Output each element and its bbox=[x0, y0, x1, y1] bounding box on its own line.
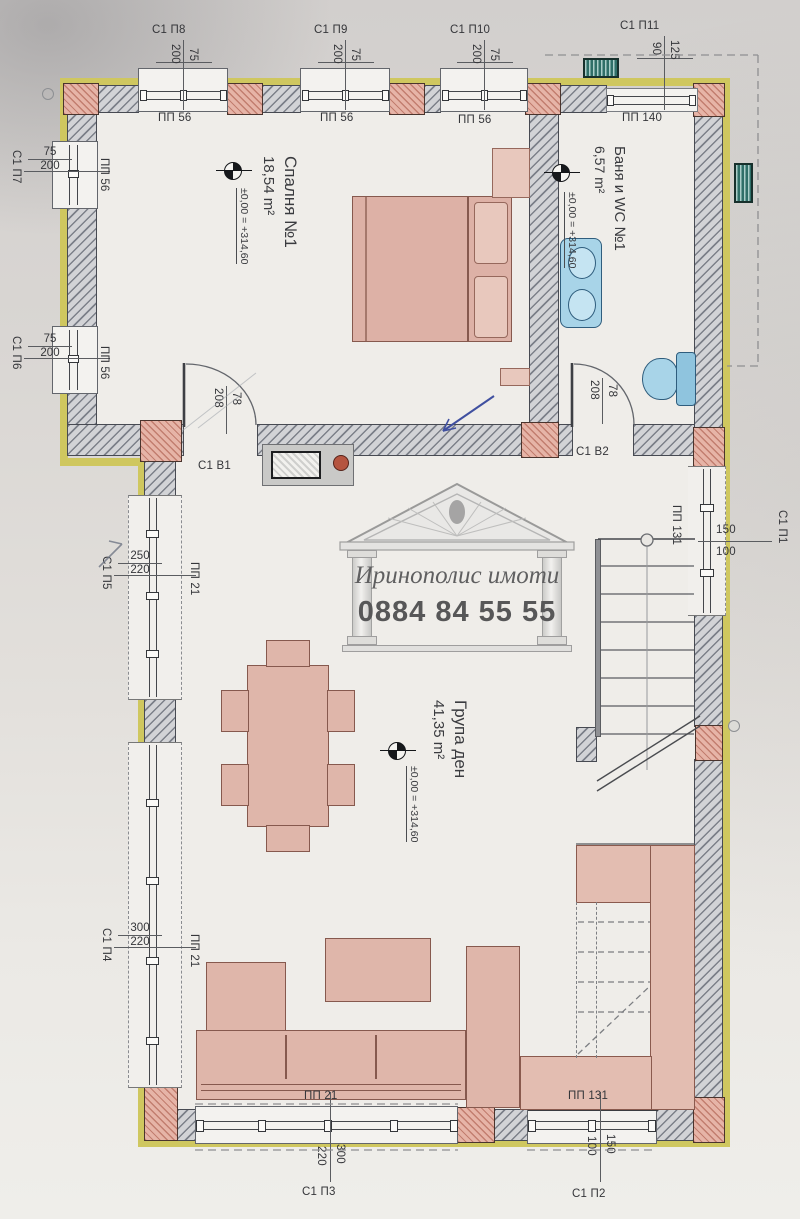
door-opening-b1 bbox=[183, 425, 258, 457]
bedroom-label: Спалня №1 18,54 m² bbox=[260, 156, 300, 248]
bed-pillow bbox=[474, 276, 508, 338]
level-marker-bath bbox=[552, 164, 570, 182]
wall-segment bbox=[145, 461, 175, 495]
chair bbox=[221, 690, 249, 732]
wall-bedroom-bath-divider bbox=[530, 112, 558, 425]
window-dim: 75 bbox=[488, 48, 500, 61]
dining-table bbox=[247, 665, 329, 827]
downpipe-circle bbox=[728, 720, 740, 732]
window-code: С1 П10 bbox=[450, 24, 490, 36]
column bbox=[228, 84, 262, 114]
window-lintel: ПП 56 bbox=[458, 114, 492, 126]
column bbox=[694, 84, 724, 116]
column bbox=[694, 1098, 724, 1142]
window-code: С1 П1 bbox=[776, 510, 788, 544]
window-lintel: ПП 21 bbox=[304, 1090, 338, 1102]
window-dim: 300 bbox=[118, 922, 162, 936]
wall-stair-stub bbox=[577, 728, 596, 761]
coffee-table bbox=[325, 938, 431, 1002]
window-p4 bbox=[128, 742, 182, 1088]
door-code: С1 В2 bbox=[576, 446, 609, 458]
chair bbox=[221, 764, 249, 806]
bedroom-level: ±0,00 = +314,60 bbox=[236, 188, 250, 264]
chair bbox=[327, 764, 355, 806]
bed-pillow bbox=[474, 202, 508, 264]
watermark-pediment-icon bbox=[338, 478, 576, 552]
stair-stringer-wall bbox=[596, 540, 600, 736]
stair-dashed-edge bbox=[596, 902, 597, 1058]
window-lintel: ПП 56 bbox=[320, 112, 354, 124]
chair bbox=[266, 825, 310, 852]
window-lintel: ПП 21 bbox=[188, 934, 200, 968]
window-dim: 200 bbox=[470, 44, 482, 64]
window-code: С1 П9 bbox=[314, 24, 348, 36]
window-lintel: ПП 140 bbox=[622, 112, 662, 124]
bath-label: Баня и WC №1 6,57 m² bbox=[592, 146, 628, 251]
level-marker-bedroom bbox=[224, 162, 242, 180]
window-dim: 200 bbox=[169, 44, 181, 64]
window-p5 bbox=[128, 495, 182, 700]
door-dim: 78 bbox=[606, 384, 618, 397]
wall-segment bbox=[558, 425, 572, 455]
window-dim: 300 bbox=[334, 1144, 346, 1164]
nightstand bbox=[500, 368, 530, 386]
window-dim: 220 bbox=[315, 1146, 327, 1166]
window-lintel: ПП 131 bbox=[568, 1090, 608, 1102]
column bbox=[522, 423, 558, 457]
column bbox=[141, 421, 181, 461]
door-dim: 208 bbox=[212, 388, 224, 408]
column bbox=[694, 428, 724, 466]
stair-lower-flight bbox=[576, 845, 652, 903]
window-lintel: ПП 56 bbox=[98, 346, 110, 380]
wall-segment bbox=[695, 616, 722, 726]
window-lintel: ПП 56 bbox=[98, 158, 110, 192]
bath-level: ±0,00 = +314,60 bbox=[564, 192, 578, 268]
window-dim: 150 bbox=[716, 524, 736, 536]
wall-pier bbox=[145, 700, 175, 742]
wardrobe bbox=[492, 148, 530, 198]
tv-cabinet bbox=[466, 946, 520, 1108]
watermark-phone: 0884 84 55 55 bbox=[338, 596, 576, 629]
column bbox=[390, 84, 424, 114]
window-code: С1 П3 bbox=[302, 1186, 336, 1198]
stair-lower-flight bbox=[650, 845, 695, 1110]
chair bbox=[266, 640, 310, 667]
wall-segment bbox=[657, 1110, 694, 1140]
window-dim: 250 bbox=[118, 550, 162, 564]
window-dim: 150 bbox=[604, 1134, 616, 1154]
window-code: С1 П7 bbox=[10, 150, 22, 184]
room-name: Спалня №1 bbox=[280, 156, 300, 248]
stove-knob bbox=[333, 455, 349, 471]
window-dim: 220 bbox=[118, 936, 162, 949]
exterior-marker-circle bbox=[42, 88, 54, 100]
window-p11 bbox=[606, 88, 698, 112]
wall-segment bbox=[634, 425, 695, 455]
window-dim: 200 bbox=[28, 347, 72, 360]
window-dim: 75 bbox=[349, 48, 361, 61]
column bbox=[526, 84, 560, 114]
chair bbox=[327, 690, 355, 732]
window-dim: 75 bbox=[28, 146, 72, 160]
wall-segment bbox=[68, 209, 96, 328]
window-lintel: ПП 131 bbox=[670, 505, 682, 545]
window-dim: 90 bbox=[650, 42, 662, 55]
column bbox=[458, 1108, 494, 1142]
wall-segment bbox=[695, 114, 722, 428]
window-dim: 125 bbox=[668, 40, 680, 60]
window-code: С1 П6 bbox=[10, 336, 22, 370]
room-name: Група ден bbox=[450, 700, 470, 778]
window-lintel: ПП 56 bbox=[158, 112, 192, 124]
window-dim: 100 bbox=[585, 1136, 597, 1156]
room-area: 41,35 m² bbox=[430, 700, 447, 778]
wall-segment bbox=[494, 1110, 527, 1140]
window-code: С1 П8 bbox=[152, 24, 186, 36]
window-dim: 220 bbox=[118, 564, 162, 577]
wall-segment bbox=[68, 394, 96, 425]
column bbox=[145, 1088, 177, 1140]
room-area: 18,54 m² bbox=[260, 156, 277, 248]
wall-segment bbox=[560, 86, 606, 112]
window-dim: 75 bbox=[28, 333, 72, 347]
wall-segment bbox=[424, 86, 440, 112]
window-code: С1 П2 bbox=[572, 1188, 606, 1200]
window-code: С1 П4 bbox=[100, 928, 112, 962]
insulation-strip-step bbox=[60, 458, 146, 466]
window-code: С1 П11 bbox=[620, 20, 659, 32]
window-dim: 200 bbox=[28, 160, 72, 173]
roof-vent bbox=[583, 58, 619, 78]
agency-watermark: Иринополис имоти 0884 84 55 55 bbox=[338, 478, 576, 658]
window-code: С1 П5 bbox=[100, 556, 112, 590]
living-label: Група ден 41,35 m² bbox=[430, 700, 470, 778]
wall-segment bbox=[68, 112, 96, 143]
window-dim: 75 bbox=[187, 48, 199, 61]
door-dim: 78 bbox=[230, 392, 242, 405]
level-marker-living bbox=[388, 742, 406, 760]
wall-vent bbox=[734, 163, 753, 203]
window-p3 bbox=[195, 1106, 458, 1144]
toilet bbox=[642, 352, 698, 406]
column bbox=[696, 726, 722, 760]
door-dim: 208 bbox=[588, 380, 600, 400]
wall-segment bbox=[177, 1110, 195, 1140]
window-lintel: ПП 21 bbox=[188, 562, 200, 596]
floorplan-photo: С1 П8 200 75 ПП 56 С1 П9 200 75 ПП 56 С1… bbox=[0, 0, 800, 1219]
wall-segment bbox=[695, 760, 722, 1102]
room-area: 6,57 m² bbox=[592, 146, 608, 251]
window-dim: 100 bbox=[716, 546, 736, 558]
wall-segment bbox=[262, 86, 300, 112]
door-code: С1 В1 bbox=[198, 460, 231, 472]
room-name: Баня и WC №1 bbox=[611, 146, 628, 251]
wall-segment bbox=[96, 86, 138, 112]
watermark-agency-name: Иринополис имоти bbox=[338, 562, 576, 590]
stair-dashed-edge bbox=[576, 902, 577, 1058]
column bbox=[64, 84, 98, 114]
window-dim: 200 bbox=[331, 44, 343, 64]
insulation-strip-left-bedroom bbox=[60, 78, 68, 466]
living-level: ±0,00 = +314,60 bbox=[406, 766, 420, 842]
